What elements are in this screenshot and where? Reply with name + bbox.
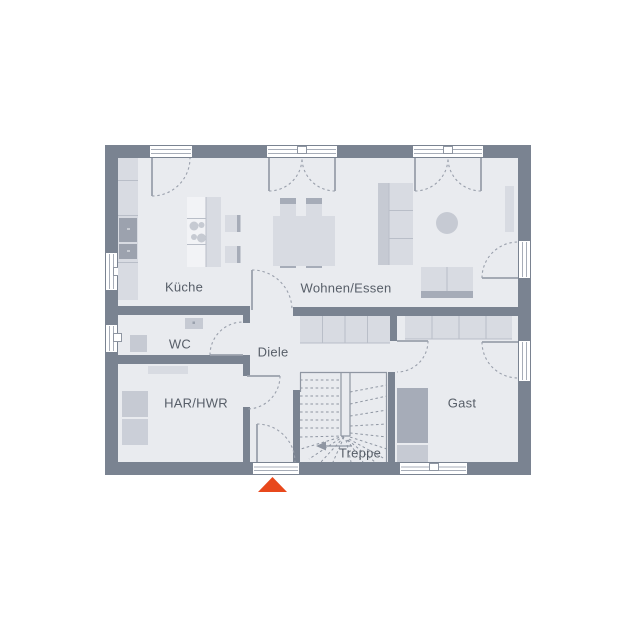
wardrobe-gast [405, 316, 512, 339]
room-label-gast: Gast [448, 396, 476, 411]
terrace-door-wohnen-sill [519, 241, 530, 278]
french-door-b [415, 158, 481, 191]
shelf-unit [378, 183, 413, 265]
entrance-door [257, 424, 295, 462]
entrance-marker-icon [258, 477, 287, 492]
floor-plan: Küche Wohnen/Essen WC Diele HAR/HWR Trep… [0, 0, 636, 636]
french-door-b-sill [413, 146, 483, 157]
plan-graphics [0, 0, 636, 636]
room-label-har-hwr: HAR/HWR [164, 396, 228, 411]
terrace-door-kitchen [152, 158, 190, 196]
har-shelf [148, 366, 188, 374]
room-label-kueche: Küche [165, 280, 203, 295]
door-kueche-diele [252, 270, 292, 310]
room-label-wohnen-essen: Wohnen/Essen [301, 281, 392, 296]
room-label-treppe: Treppe [339, 446, 381, 461]
dryer [122, 419, 148, 445]
french-door-a [269, 158, 335, 191]
bar-stools [225, 215, 241, 263]
side-table [436, 212, 458, 234]
window-gast-south [400, 463, 467, 474]
door-wc [210, 322, 243, 355]
sofa [421, 267, 473, 298]
radiator [505, 186, 514, 232]
door-gast [397, 341, 428, 372]
entrance-door-sill [253, 463, 299, 474]
kitchen-island [187, 197, 221, 267]
bed [397, 388, 428, 462]
window-wc-west [106, 325, 122, 352]
room-label-wc: WC [169, 337, 191, 352]
terrace-door-gast [482, 342, 518, 378]
washbasin [130, 335, 147, 352]
toilet [185, 318, 203, 329]
terrace-door-gast-sill [519, 341, 530, 381]
wardrobe-diele [300, 316, 390, 343]
kitchen-counter [118, 158, 138, 300]
terrace-door-kitchen-sill [150, 146, 192, 157]
room-label-diele: Diele [258, 345, 289, 360]
washer [122, 391, 148, 417]
terrace-door-wohnen [482, 242, 518, 278]
french-door-a-sill [267, 146, 337, 157]
door-har-hwr [247, 376, 280, 409]
dining-table [273, 216, 335, 266]
